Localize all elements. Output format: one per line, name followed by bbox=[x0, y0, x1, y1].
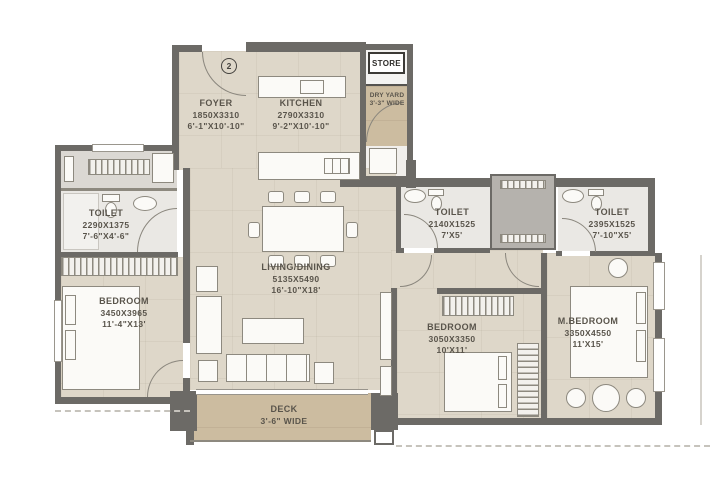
kitchen-label: KITCHEN 2790X3310 9'-2"X10'-10" bbox=[273, 98, 330, 132]
bedroom-left-label: BEDROOM 3450X3965 11'-4"X13' bbox=[99, 296, 149, 330]
deck-stub-left bbox=[186, 431, 194, 445]
dashed-line-right bbox=[396, 445, 710, 447]
wall-store-top bbox=[363, 44, 413, 50]
side-stool-master bbox=[608, 258, 628, 278]
shelf-unit-living-2 bbox=[380, 366, 392, 396]
wardrobe-bedroom-left bbox=[61, 257, 178, 276]
living-dining-label: LIVING/DINING 5135X5490 16'-10"X18' bbox=[261, 262, 330, 296]
window-bedroom-left bbox=[54, 300, 62, 362]
wardrobe-bedroom-mid-top bbox=[442, 296, 514, 316]
shaft-grille-bottom bbox=[500, 234, 546, 243]
deck-column-right bbox=[371, 393, 398, 430]
wall-bedrooms-divider bbox=[541, 253, 547, 418]
sink-mid bbox=[404, 189, 426, 203]
tv-unit-upper bbox=[196, 266, 218, 292]
dining-chair bbox=[320, 191, 336, 203]
wall-toilet-right-outer bbox=[648, 178, 655, 256]
door-gap-toilet-mid bbox=[404, 248, 434, 253]
wall-foyer-top-left bbox=[172, 45, 202, 52]
dry-yard-label: DRY YARD 3'-3" WIDE bbox=[370, 92, 405, 109]
wall-toilet-right-top bbox=[556, 178, 655, 187]
wall-store-bottom-line bbox=[366, 84, 407, 86]
side-table-left bbox=[198, 360, 218, 382]
deck-label: DECK 3'-6" WIDE bbox=[261, 404, 308, 427]
pillow bbox=[498, 356, 507, 380]
round-table bbox=[592, 384, 620, 412]
coffee-table bbox=[242, 318, 304, 344]
bedroom-mid-label: BEDROOM 3050X3350 10'X11' bbox=[427, 322, 477, 356]
side-table-right bbox=[314, 362, 334, 384]
pillow bbox=[498, 384, 507, 408]
pillow bbox=[65, 330, 76, 360]
wall-living-left-upper bbox=[183, 168, 190, 343]
dining-chair bbox=[346, 222, 358, 238]
entry-number-badge: 2 bbox=[221, 58, 237, 74]
wall-bedroom-mid-top bbox=[437, 288, 543, 294]
passage-corner-unit bbox=[152, 153, 174, 183]
wall-kitchen-top bbox=[246, 42, 366, 52]
wardrobe-bedroom-mid-right bbox=[517, 343, 539, 417]
dining-table bbox=[262, 206, 344, 252]
window-leftwing-top bbox=[92, 144, 144, 152]
washing-machine bbox=[369, 148, 397, 174]
m-bedroom-label: M.BEDROOM 3350X4550 11'X15' bbox=[558, 316, 619, 350]
pouf bbox=[626, 388, 646, 408]
passage-bench bbox=[64, 156, 74, 182]
wall-bottom-right-outer bbox=[391, 418, 662, 425]
wc-tank-left bbox=[102, 194, 120, 202]
store-label: STORE bbox=[368, 52, 405, 74]
wall-passage-toilet-divider bbox=[61, 188, 177, 191]
wall-toilet-mid-left bbox=[396, 187, 401, 250]
shoe-rack bbox=[88, 159, 150, 175]
wc-tank-right bbox=[588, 189, 604, 196]
kitchen-hob bbox=[300, 80, 324, 94]
window-m-bedroom-2 bbox=[653, 338, 665, 392]
pouf bbox=[566, 388, 586, 408]
pillow bbox=[636, 330, 646, 362]
sink-right bbox=[562, 189, 584, 203]
pillow bbox=[65, 295, 76, 325]
dashed-line-left bbox=[55, 410, 190, 412]
wc-tank-mid bbox=[428, 189, 444, 196]
toilet-left-label: TOILET 2290X1375 7'-6"X4'-6" bbox=[82, 208, 129, 242]
entry-number: 2 bbox=[227, 61, 232, 71]
wall-store-right bbox=[407, 44, 413, 178]
dining-chair bbox=[248, 222, 260, 238]
pillow bbox=[636, 292, 646, 324]
dining-chair bbox=[268, 191, 284, 203]
window-m-bedroom-1 bbox=[653, 262, 665, 310]
shelf-unit-living-1 bbox=[380, 292, 392, 360]
shaft-grille-top bbox=[500, 180, 546, 189]
toilet-right-label: TOILET 2395X1525 7'-10"X5' bbox=[588, 207, 635, 241]
tv-unit bbox=[196, 296, 222, 354]
living-deck-sliding-door bbox=[196, 389, 368, 395]
toilet-mid-label: TOILET 2140X1525 7'X5' bbox=[428, 207, 475, 241]
foyer-label: FOYER 1850X3310 6'-1"X10'-10" bbox=[188, 98, 245, 132]
dining-chair bbox=[294, 191, 310, 203]
deck-planter bbox=[374, 430, 394, 445]
floor-plan: 2 bbox=[0, 0, 718, 489]
right-ledge-line bbox=[700, 255, 702, 425]
kitchen-sink bbox=[324, 158, 350, 174]
wall-kitchen-dryyard bbox=[360, 50, 366, 180]
sofa bbox=[226, 354, 310, 382]
sink-left bbox=[133, 196, 157, 211]
wall-toilet-mid-top bbox=[396, 178, 490, 187]
deck-bottom-edge bbox=[190, 440, 371, 442]
